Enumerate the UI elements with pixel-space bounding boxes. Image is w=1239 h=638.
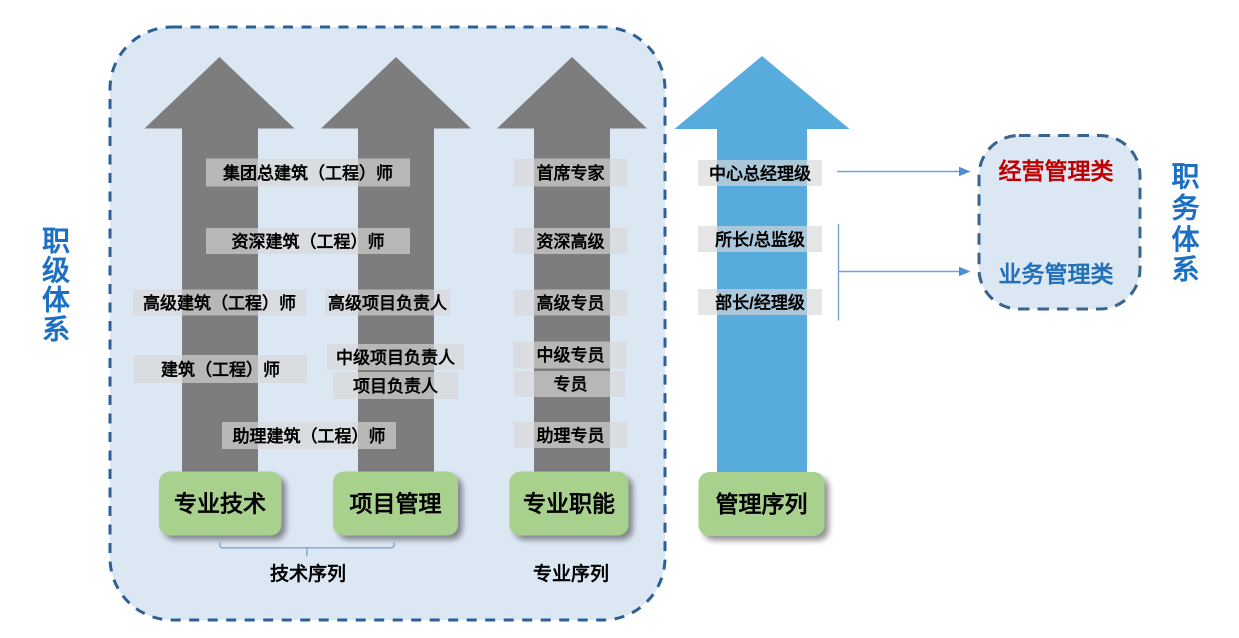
svg-text:专员: 专员 [554, 374, 588, 394]
svg-text:项目管理: 项目管理 [350, 491, 442, 517]
svg-text:职: 职 [1171, 161, 1199, 192]
svg-text:系: 系 [1171, 254, 1199, 285]
svg-text:体: 体 [1171, 224, 1200, 255]
svg-text:建筑（工程）师: 建筑（工程）师 [161, 360, 280, 380]
svg-text:中级专员: 中级专员 [537, 345, 605, 365]
svg-text:助理建筑（工程）师: 助理建筑（工程）师 [233, 426, 386, 446]
svg-text:业务管理类: 业务管理类 [999, 261, 1114, 287]
svg-text:资深高级: 资深高级 [537, 232, 605, 252]
svg-text:管理序列: 管理序列 [716, 491, 808, 517]
svg-text:部长/经理级: 部长/经理级 [715, 293, 805, 313]
svg-text:体: 体 [42, 285, 71, 316]
svg-text:首席专家: 首席专家 [537, 163, 605, 183]
svg-text:高级建筑（工程）师: 高级建筑（工程）师 [143, 293, 296, 313]
svg-text:经营管理类: 经营管理类 [999, 158, 1114, 184]
svg-text:助理专员: 助理专员 [537, 426, 605, 446]
svg-text:专业技术: 专业技术 [174, 491, 266, 517]
svg-text:职: 职 [42, 226, 70, 257]
svg-text:高级项目负责人: 高级项目负责人 [328, 293, 448, 313]
svg-text:集团总建筑（工程）师: 集团总建筑（工程）师 [222, 163, 393, 183]
svg-text:技术序列: 技术序列 [270, 562, 346, 585]
svg-text:中心总经理级: 中心总经理级 [709, 164, 811, 184]
svg-text:系: 系 [42, 314, 70, 345]
svg-text:所长/总监级: 所长/总监级 [715, 230, 805, 250]
svg-text:中级项目负责人: 中级项目负责人 [336, 348, 456, 368]
svg-text:项目负责人: 项目负责人 [353, 376, 439, 396]
svg-text:级: 级 [42, 255, 70, 286]
svg-text:专业职能: 专业职能 [523, 491, 615, 517]
svg-text:专业序列: 专业序列 [533, 562, 609, 585]
svg-text:高级专员: 高级专员 [537, 293, 605, 313]
svg-text:资深建筑（工程）师: 资深建筑（工程）师 [232, 232, 385, 252]
svg-text:务: 务 [1171, 193, 1199, 224]
